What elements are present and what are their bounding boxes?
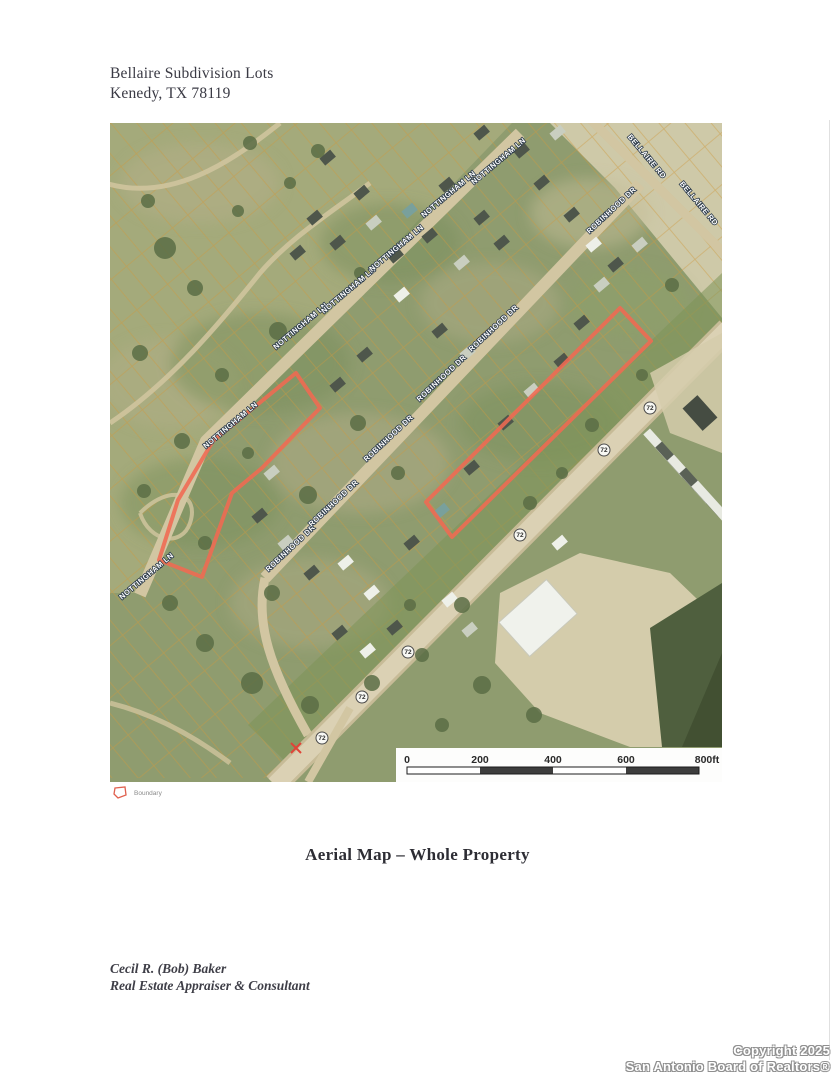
document-page: Bellaire Subdivision Lots Kenedy, TX 781… bbox=[0, 0, 835, 1080]
tree bbox=[636, 369, 648, 381]
tree bbox=[665, 278, 679, 292]
tree bbox=[404, 599, 416, 611]
tree bbox=[187, 280, 203, 296]
svg-text:72: 72 bbox=[516, 532, 524, 539]
svg-text:72: 72 bbox=[318, 735, 326, 742]
route-shield-72: 72 bbox=[644, 402, 656, 414]
route-shield-72: 72 bbox=[514, 529, 526, 541]
tree bbox=[364, 675, 380, 691]
property-header: Bellaire Subdivision Lots Kenedy, TX 781… bbox=[110, 64, 273, 105]
tree bbox=[154, 237, 176, 259]
tree bbox=[132, 345, 148, 361]
tree bbox=[391, 466, 405, 480]
tree bbox=[198, 536, 212, 550]
map-legend: Boundary bbox=[112, 786, 162, 800]
tree bbox=[141, 194, 155, 208]
route-shield-72: 72 bbox=[356, 691, 368, 703]
route-shield-72: 72 bbox=[316, 732, 328, 744]
property-name: Bellaire Subdivision Lots bbox=[110, 64, 273, 84]
property-location: Kenedy, TX 78119 bbox=[110, 84, 273, 104]
tree bbox=[350, 415, 366, 431]
tree bbox=[526, 707, 542, 723]
appraiser-name: Cecil R. (Bob) Baker bbox=[110, 960, 310, 977]
scale-tick: 600 bbox=[617, 754, 635, 766]
tree bbox=[215, 368, 229, 382]
scale-tick: 0 bbox=[404, 754, 410, 766]
tree bbox=[311, 144, 325, 158]
tree bbox=[196, 634, 214, 652]
tree bbox=[473, 676, 491, 694]
tree bbox=[241, 672, 263, 694]
legend-boundary-label: Boundary bbox=[134, 790, 162, 797]
route-shield-72: 72 bbox=[598, 444, 610, 456]
tree bbox=[242, 447, 254, 459]
copyright-org: San Antonio Board of Realtors® bbox=[626, 1059, 830, 1075]
tree bbox=[415, 648, 429, 662]
svg-text:72: 72 bbox=[404, 649, 412, 656]
scale-bar: 0200400600800ft bbox=[396, 748, 722, 782]
aerial-map: 727272727272NOTTINGHAM LNNOTTINGHAM LNNO… bbox=[110, 123, 722, 782]
tree bbox=[243, 136, 257, 150]
appraiser-footer: Cecil R. (Bob) Baker Real Estate Apprais… bbox=[110, 960, 310, 995]
tree bbox=[301, 696, 319, 714]
tree bbox=[264, 585, 280, 601]
boundary-polygon-icon bbox=[112, 786, 128, 800]
tree bbox=[232, 205, 244, 217]
tree bbox=[435, 718, 449, 732]
scale-tick: 200 bbox=[471, 754, 489, 766]
svg-text:72: 72 bbox=[600, 447, 608, 454]
tree bbox=[585, 418, 599, 432]
appraiser-role: Real Estate Appraiser & Consultant bbox=[110, 977, 310, 994]
map-caption: Aerial Map – Whole Property bbox=[0, 845, 835, 865]
svg-text:72: 72 bbox=[358, 694, 366, 701]
tree bbox=[284, 177, 296, 189]
scale-tick: 800ft bbox=[695, 754, 720, 766]
scan-artifact-line bbox=[829, 120, 830, 1060]
tree bbox=[299, 486, 317, 504]
tree bbox=[556, 467, 568, 479]
route-shield-72: 72 bbox=[402, 646, 414, 658]
tree bbox=[137, 484, 151, 498]
tree bbox=[523, 496, 537, 510]
tree bbox=[174, 433, 190, 449]
svg-text:72: 72 bbox=[646, 405, 654, 412]
aerial-map-image: 727272727272NOTTINGHAM LNNOTTINGHAM LNNO… bbox=[110, 123, 722, 782]
copyright-year: Copyright 2025 bbox=[626, 1043, 830, 1059]
tree bbox=[162, 595, 178, 611]
scale-tick: 400 bbox=[544, 754, 562, 766]
tree bbox=[454, 597, 470, 613]
copyright-watermark: Copyright 2025 San Antonio Board of Real… bbox=[626, 1043, 830, 1075]
